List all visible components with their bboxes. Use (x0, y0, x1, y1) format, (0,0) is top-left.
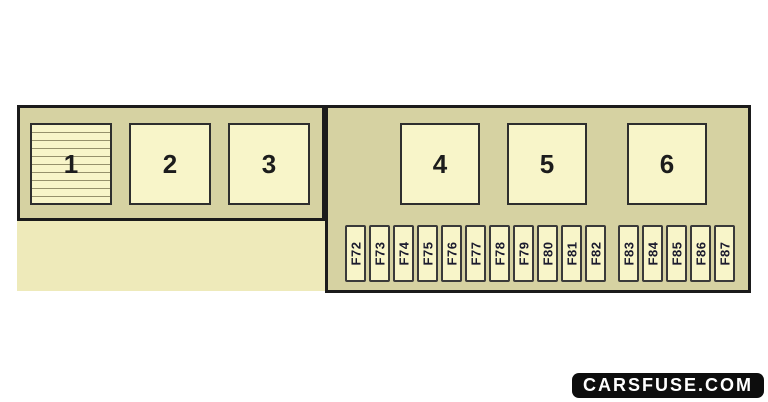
module-label: 2 (163, 151, 177, 177)
relay-panel-left: 1 2 3 (17, 105, 325, 221)
fuse-group-f83-f87: F83 F84 F85 F86 F87 (618, 225, 735, 282)
fuse-f76: F76 (441, 225, 462, 282)
fuse-f83: F83 (618, 225, 639, 282)
fuse-diagram-canvas: 1 2 3 4 5 6 F72 F73 F74 F75 F76 F77 (0, 0, 768, 402)
module-label: 6 (660, 151, 674, 177)
fuse-f86: F86 (690, 225, 711, 282)
fuse-f84: F84 (642, 225, 663, 282)
module-label: 4 (433, 151, 447, 177)
fuse-f74: F74 (393, 225, 414, 282)
module-box-3: 3 (228, 123, 310, 205)
fuse-f81: F81 (561, 225, 582, 282)
lower-compartment (17, 221, 325, 291)
module-box-6: 6 (627, 123, 707, 205)
fuse-f79: F79 (513, 225, 534, 282)
fuse-panel-right: 4 5 6 F72 F73 F74 F75 F76 F77 F78 F79 F8… (325, 105, 751, 293)
fuse-f77: F77 (465, 225, 486, 282)
fuse-f72: F72 (345, 225, 366, 282)
fuse-f85: F85 (666, 225, 687, 282)
fuse-f78: F78 (489, 225, 510, 282)
module-label: 1 (64, 151, 78, 177)
fuse-f87: F87 (714, 225, 735, 282)
module-label: 3 (262, 151, 276, 177)
module-box-1: 1 (30, 123, 112, 205)
module-box-2: 2 (129, 123, 211, 205)
module-box-5: 5 (507, 123, 587, 205)
watermark-text: CARSFUSE.COM (583, 375, 753, 395)
module-box-4: 4 (400, 123, 480, 205)
fuse-f80: F80 (537, 225, 558, 282)
fuse-f75: F75 (417, 225, 438, 282)
fuse-row: F72 F73 F74 F75 F76 F77 F78 F79 F80 F81 … (345, 225, 735, 282)
module-label: 5 (540, 151, 554, 177)
fuse-f82: F82 (585, 225, 606, 282)
watermark-badge: CARSFUSE.COM (572, 373, 764, 398)
fuse-f73: F73 (369, 225, 390, 282)
fuse-group-f72-f82: F72 F73 F74 F75 F76 F77 F78 F79 F80 F81 … (345, 225, 606, 282)
